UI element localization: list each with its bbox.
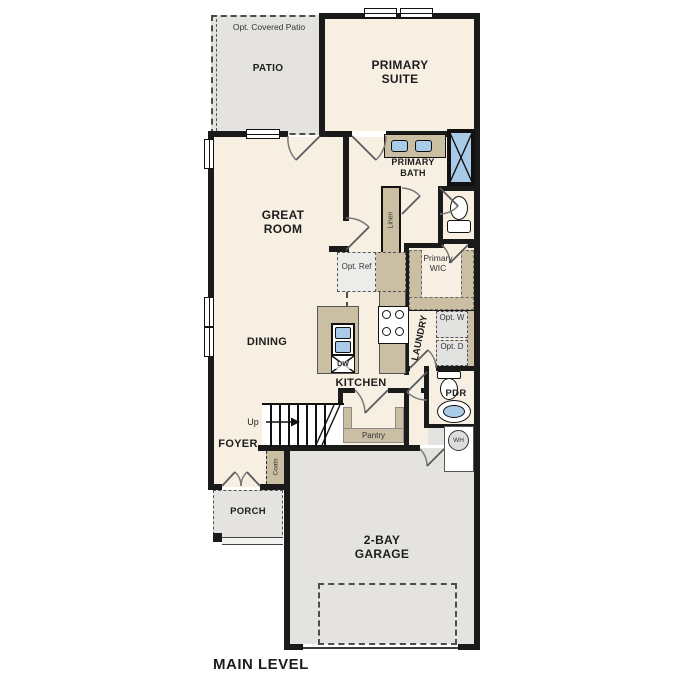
label-coats: Coats [273, 459, 280, 476]
floor-plan: Opt. Covered Patio PATIO PRIMARY SUITE P… [0, 0, 687, 687]
door-arc [428, 350, 436, 368]
door-arc [346, 218, 369, 227]
stair-break-lines [316, 405, 340, 445]
label-kitchen: KITCHEN [330, 377, 392, 390]
label-patio: PATIO [237, 63, 299, 75]
door-leaf [440, 188, 458, 206]
door-leaf [352, 136, 376, 160]
door-arc [235, 472, 241, 486]
stair-arrow-head [291, 418, 300, 427]
label-primary-suite: PRIMARY SUITE [361, 58, 439, 86]
label-garage: 2-BAY GARAGE [346, 533, 418, 561]
label-opt-ref: Opt. Ref [340, 262, 373, 271]
label-pantry: Pantry [343, 431, 404, 440]
door-leaf [222, 472, 235, 486]
door-arc [402, 188, 420, 196]
door-arc [355, 390, 365, 413]
label-main-level: MAIN LEVEL [213, 656, 383, 674]
label-pdr: PDR [442, 388, 470, 399]
door-leaf [427, 449, 444, 466]
label-foyer: FOYER [214, 438, 262, 451]
label-primary-wic: Primary WIC [414, 253, 462, 273]
door-arc [420, 449, 427, 466]
door-arc [440, 206, 458, 214]
label-dw: DW [332, 361, 354, 369]
label-linen: Linen [388, 211, 395, 228]
door-arc [288, 136, 296, 160]
label-primary-bath: PRIMARY BATH [385, 157, 441, 178]
label-dining: DINING [235, 336, 299, 349]
door-leaf [407, 372, 427, 392]
door-leaf [346, 227, 369, 250]
label-great-room: GREAT ROOM [243, 208, 323, 236]
door-arc [241, 472, 247, 486]
plan-linework [0, 0, 687, 687]
door-arc [407, 392, 427, 400]
label-porch: PORCH [224, 506, 272, 517]
door-leaf [402, 196, 420, 214]
label-wh: WH [448, 437, 469, 444]
label-up: Up [242, 417, 264, 427]
label-opt-d: Opt. D [438, 342, 466, 351]
label-opt-w: Opt. W [438, 313, 466, 322]
door-leaf [365, 390, 388, 413]
door-leaf [247, 472, 260, 486]
door-leaf [296, 136, 320, 160]
label-opt-covered-patio: Opt. Covered Patio [218, 22, 320, 32]
shower-x [450, 133, 472, 182]
